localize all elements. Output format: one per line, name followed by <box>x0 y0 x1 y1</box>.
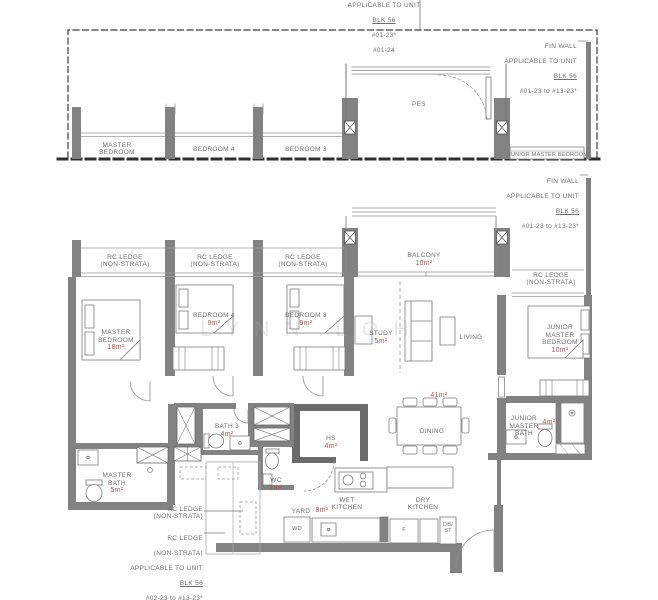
rc-ledge-3-label: RC LEDGE (NON-STRATA) <box>268 254 338 269</box>
fin-wall-upper <box>586 42 591 159</box>
rc-ledge-right-label: RC LEDGE (NON-STRATA) <box>516 272 586 287</box>
study-label: STUDY5m² <box>346 323 416 353</box>
master-bedroom-door <box>130 381 150 401</box>
dry-kitchen-counter <box>387 467 453 488</box>
wet-kitchen-label: WET KITCHEN <box>312 497 382 512</box>
wet-kitchen-counter <box>335 468 387 492</box>
fin-wall-main <box>586 178 591 298</box>
living-dining-area-label: 41m² <box>414 385 464 407</box>
upper-pes-label: PES <box>399 101 439 108</box>
note-top-blk56: APPLICABLE TO UNIT BLK 56 #01-23* #01-24 <box>346 0 422 62</box>
upper-bedroom3-label: BEDROOM 3 <box>271 146 341 153</box>
junior-master-bedroom-label: JUNIOR MASTER BEDROOM10m² <box>525 317 595 361</box>
floor-plan: LYNN LOH APPLICABLE TO UNIT BLK 56 #01-2… <box>0 0 658 600</box>
bath3-label: BATH 34m² <box>192 416 262 446</box>
hs-door <box>304 461 334 491</box>
ac-unit <box>240 502 256 534</box>
junior-suite-door-leaf <box>499 377 505 397</box>
balcony-label: BALCONY10m² <box>389 245 459 275</box>
master-bedroom-label: MASTER BEDROOM18m² <box>81 322 151 359</box>
pes-door-swing <box>438 75 487 120</box>
master-bath-label: MASTER BATH5m² <box>82 465 152 502</box>
living-label: LIVING <box>436 327 506 349</box>
hs-label: HS4m² <box>296 428 366 458</box>
rc-ledge-2-label: RC LEDGE (NON-STRATA) <box>180 254 250 269</box>
bedroom3-label: BEDROOM 39m² <box>271 305 341 335</box>
bedroom4-door <box>213 376 233 396</box>
bedroom3-door <box>303 376 323 396</box>
db-st-label: DB/ ST <box>430 522 466 535</box>
note-fin-wall-main: FIN WALL APPLICABLE TO UNIT BLK 56 #01-2… <box>489 171 579 238</box>
note-fin-wall-upper: FIN WALL APPLICABLE TO UNIT BLK 56 #01-2… <box>487 36 577 103</box>
dining-label: DINING <box>397 421 467 443</box>
upper-junior-master-bedroom-label: JUNIOR MASTER BEDROOM <box>504 152 592 158</box>
bedroom4-label: BEDROOM 49m² <box>179 305 249 335</box>
upper-master-bedroom-label: MASTER BEDROOM <box>82 142 152 157</box>
wc-label: WC1m² <box>246 470 306 500</box>
note-rc-ledge: RC LEDGE (NON-STRATA) APPLICABLE TO UNIT… <box>98 528 203 600</box>
upper-bedroom4-label: BEDROOM 4 <box>179 146 249 153</box>
rc-ledge-1-label: RC LEDGE (NON-STRATA) <box>90 254 160 269</box>
fridge-label: F <box>384 527 424 533</box>
dry-kitchen-label: DRY KITCHEN <box>388 497 458 512</box>
note-ac-ledge: AC LEDGE (NON-STRATA) <box>118 506 203 521</box>
junior-master-bath-area-label: 4m² <box>527 412 571 434</box>
wd-label: WD <box>277 526 317 532</box>
